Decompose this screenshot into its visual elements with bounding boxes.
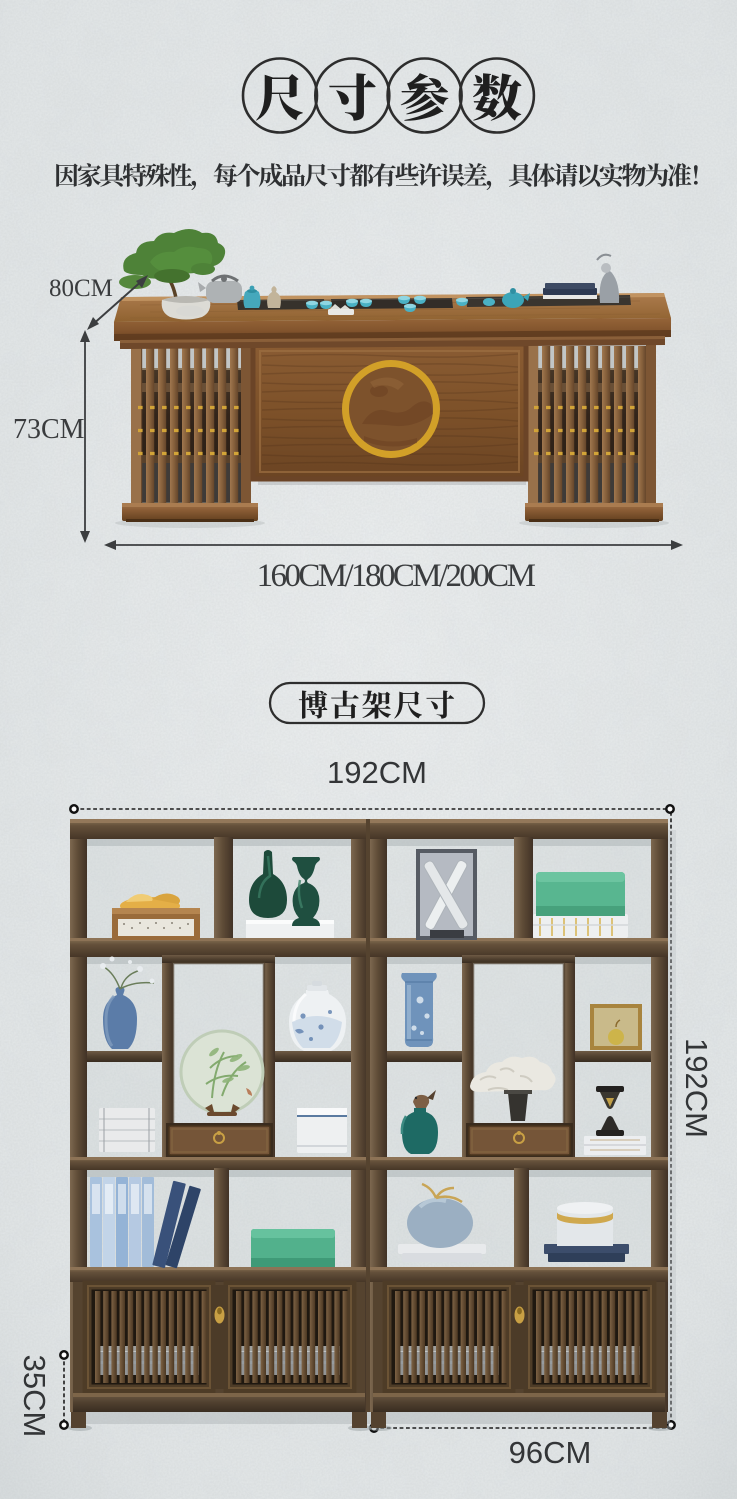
svg-text:192CM: 192CM [679, 1038, 714, 1138]
svg-text:73CM: 73CM [13, 414, 85, 445]
svg-text:192CM: 192CM [327, 755, 427, 790]
svg-text:96CM: 96CM [509, 1435, 592, 1470]
svg-text:35CM: 35CM [17, 1355, 52, 1438]
svg-text:160CM/180CM/200CM: 160CM/180CM/200CM [257, 558, 536, 594]
svg-text:80CM: 80CM [49, 275, 113, 302]
